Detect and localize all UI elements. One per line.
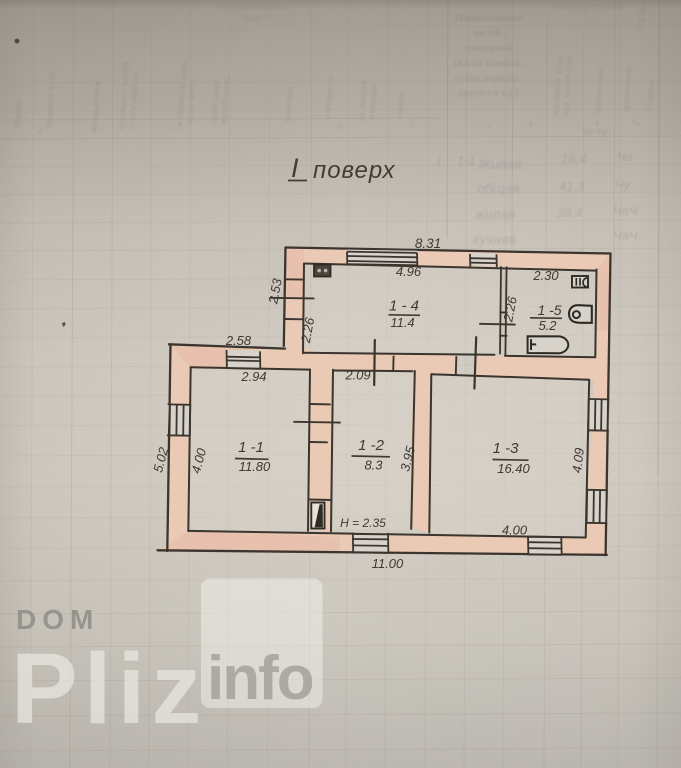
svg-text:кухня, коридор,: кухня, коридор, (455, 73, 522, 84)
svg-text:DOM: DOM (16, 604, 99, 635)
svg-text:санузел и т.д.): санузел и т.д.) (458, 88, 518, 99)
svg-text:частей: частей (473, 28, 502, 39)
svg-text:2.30: 2.30 (532, 268, 559, 283)
svg-text:41,3: 41,3 (559, 179, 585, 194)
svg-text:общая: общая (477, 180, 521, 196)
svg-text:Pliz: Pliz (11, 633, 207, 745)
svg-text:3: 3 (91, 124, 96, 134)
svg-text:чу чу: чу чу (582, 126, 609, 138)
svg-text:11.4: 11.4 (390, 315, 414, 330)
svg-text:І: І (437, 154, 441, 169)
svg-text:Чу: Чу (615, 177, 632, 192)
svg-text:2.94: 2.94 (240, 369, 266, 384)
svg-text:Ча: Ча (617, 149, 633, 164)
svg-text:6: 6 (338, 121, 343, 131)
svg-text:1 -3: 1 -3 (493, 440, 520, 457)
svg-text:4.96: 4.96 (396, 264, 422, 279)
svg-text:жилая: жилая (474, 206, 516, 222)
svg-text:Наименование: Наименование (455, 12, 524, 24)
svg-text:№: № (632, 118, 641, 128)
svg-text:ЧаЧ: ЧаЧ (613, 228, 638, 243)
svg-text:4.09: 4.09 (569, 447, 587, 474)
svg-text:11.80: 11.80 (239, 459, 271, 474)
svg-text:доме: доме (243, 13, 262, 23)
svg-text:2: 2 (38, 125, 43, 135)
svg-text:комнат и площади: комнат и площади (555, 1, 625, 11)
svg-text:4: 4 (487, 120, 492, 130)
svg-text:1 -1: 1 -1 (238, 439, 264, 456)
svg-text:сведения о жилом: сведения о жилом (218, 2, 287, 12)
svg-text:1 - 4: 1 - 4 (389, 298, 419, 315)
svg-text:ЧаЧ: ЧаЧ (613, 203, 638, 218)
svg-text:8.3: 8.3 (364, 458, 383, 473)
svg-text:5.2: 5.2 (538, 318, 557, 333)
svg-text:поверх: поверх (313, 157, 395, 184)
svg-text:11: 11 (174, 123, 183, 133)
svg-text:11.00: 11.00 (372, 556, 404, 571)
svg-text:кухняя: кухняя (473, 231, 517, 247)
svg-text:Название влад.: Название влад. (44, 70, 56, 128)
svg-text:9: 9 (410, 120, 415, 130)
svg-text:(жилая комната,: (жилая комната, (454, 58, 523, 69)
svg-text:помещений: помещений (463, 43, 513, 54)
svg-text:4: 4 (528, 119, 533, 129)
svg-text:Номера: Номера (12, 99, 23, 128)
svg-text:1 -2: 1 -2 (358, 437, 385, 454)
svg-text:І: І (291, 153, 299, 183)
svg-text:H = 2.35: H = 2.35 (340, 516, 386, 530)
svg-text:16.40: 16.40 (497, 461, 530, 476)
svg-text:36,4: 36,4 (557, 205, 582, 220)
svg-text:16,4: 16,4 (561, 151, 586, 166)
svg-text:info: info (207, 644, 313, 713)
svg-text:4.00: 4.00 (502, 523, 528, 538)
svg-text:комнат: комнат (394, 91, 406, 118)
svg-text:1-1: 1-1 (457, 153, 476, 168)
svg-text:Жилая: Жилая (477, 156, 522, 172)
svg-text:8.31: 8.31 (415, 236, 441, 251)
svg-text:2.09: 2.09 (344, 368, 370, 383)
svg-text:1 -5: 1 -5 (537, 302, 561, 318)
svg-text:2.58: 2.58 (225, 333, 252, 348)
